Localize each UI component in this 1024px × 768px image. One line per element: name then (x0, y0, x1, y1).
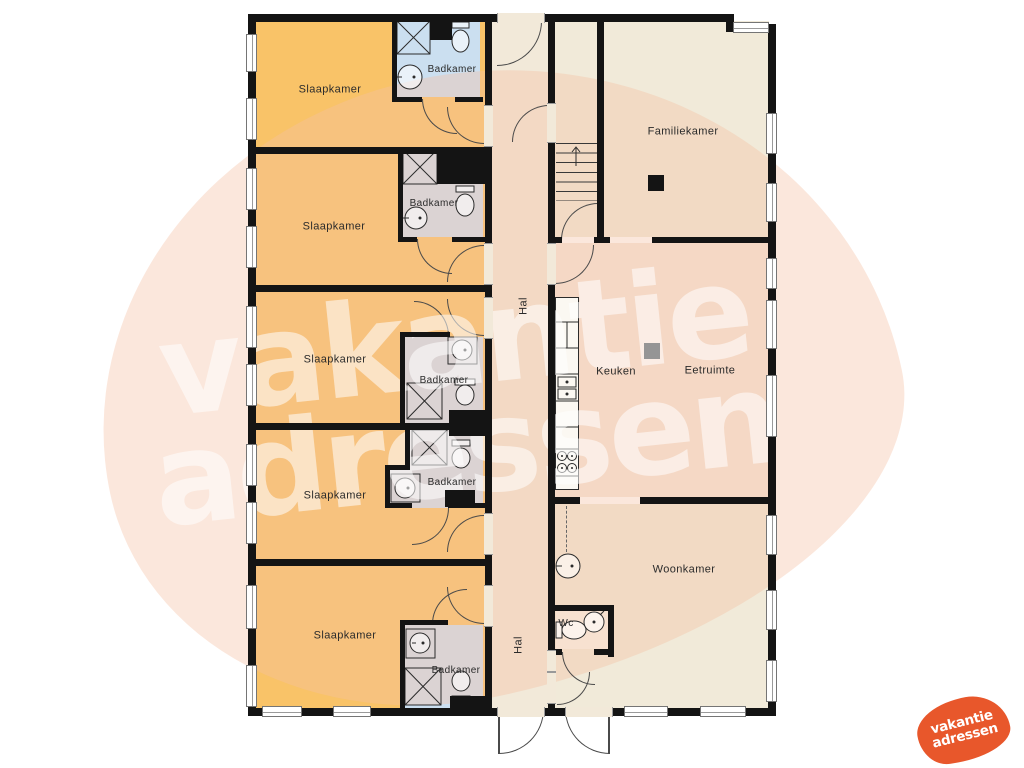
window (246, 306, 257, 348)
logo-text: vakantie adressen (928, 708, 1000, 751)
wall (400, 332, 405, 423)
room-label-wc: Wc (558, 619, 573, 629)
wall (594, 649, 614, 655)
pillar (644, 343, 660, 359)
door-opening (484, 105, 493, 147)
room-label-slaapkamer-5: Slaapkamer (314, 631, 377, 642)
wall (640, 497, 776, 504)
room-label-hal-upper: Hal (519, 297, 530, 315)
woonkamer-sink (552, 549, 584, 583)
room-label-badkamer-4: Badkamer (428, 478, 477, 488)
window (766, 660, 777, 702)
door-opening (484, 513, 493, 555)
wall (400, 332, 450, 337)
room-label-badkamer-2: Badkamer (410, 199, 459, 209)
door-opening (547, 650, 556, 672)
room-label-woonkamer: Woonkamer (653, 565, 716, 576)
window (700, 706, 746, 717)
wall (594, 237, 610, 243)
entrance-opening (565, 707, 613, 717)
wall (392, 16, 397, 102)
door-opening (484, 243, 493, 285)
window (246, 34, 257, 72)
window (246, 585, 257, 629)
wall (437, 147, 485, 184)
door-opening (497, 13, 545, 23)
window (766, 590, 777, 630)
entrance-opening (497, 707, 545, 717)
window (246, 364, 257, 406)
window (246, 665, 257, 707)
window (733, 22, 769, 33)
window (766, 258, 777, 289)
toilet-icon (452, 22, 469, 28)
pillar (648, 175, 664, 191)
wall (398, 237, 417, 242)
wall (255, 559, 485, 566)
window (246, 226, 257, 268)
room-label-badkamer-1: Badkamer (428, 65, 477, 75)
wall (430, 16, 452, 40)
wall (449, 410, 485, 436)
window (766, 300, 777, 349)
wall (445, 490, 475, 507)
wall (551, 605, 614, 611)
wall (398, 147, 403, 242)
room-label-keuken: Keuken (596, 367, 636, 378)
wall (385, 503, 412, 508)
room-label-slaapkamer-4: Slaapkamer (304, 491, 367, 502)
door-opening (484, 297, 493, 339)
watermark-blob (39, 0, 950, 766)
wall (450, 696, 485, 709)
wall (400, 620, 448, 625)
window (766, 515, 777, 555)
window (624, 706, 668, 717)
room-label-slaapkamer-1: Slaapkamer (299, 85, 362, 96)
window (246, 502, 257, 544)
door-opening (547, 243, 556, 285)
wall (405, 423, 410, 470)
toilet-icon (452, 440, 470, 446)
counter-dashed-line (566, 506, 567, 552)
kitchen-counter (555, 297, 579, 490)
window (246, 444, 257, 486)
window (766, 183, 777, 222)
window (246, 98, 257, 140)
door-opening (484, 585, 493, 627)
wall (597, 14, 604, 241)
room-label-hal-lower: Hal (514, 636, 525, 654)
room-label-badkamer-3: Badkamer (420, 376, 469, 386)
room-label-eetruimte: Eetruimte (685, 366, 736, 377)
wall (255, 285, 485, 292)
vakantieadressen-logo: vakantie adressen (912, 690, 1015, 768)
wall (385, 465, 390, 508)
toilet-icon (456, 186, 474, 192)
wall (652, 237, 776, 243)
room-label-badkamer-5: Badkamer (432, 666, 481, 676)
window (262, 706, 302, 717)
room-label-slaapkamer-2: Slaapkamer (303, 222, 366, 233)
wall (452, 237, 485, 242)
wall (392, 97, 422, 102)
wc-fixtures (554, 608, 608, 654)
window (766, 375, 777, 437)
floorplan-canvas: vakantie adressen (0, 0, 1024, 768)
door-opening (547, 103, 556, 143)
wall (548, 497, 580, 504)
wall (400, 620, 405, 714)
window (246, 168, 257, 210)
door-opening (547, 672, 556, 704)
wall (455, 97, 483, 102)
stairs-up-arrow-icon (570, 144, 582, 168)
room-label-familiekamer: Familiekamer (648, 127, 719, 138)
window (333, 706, 371, 717)
room-label-slaapkamer-3: Slaapkamer (304, 355, 367, 366)
window (766, 113, 777, 154)
